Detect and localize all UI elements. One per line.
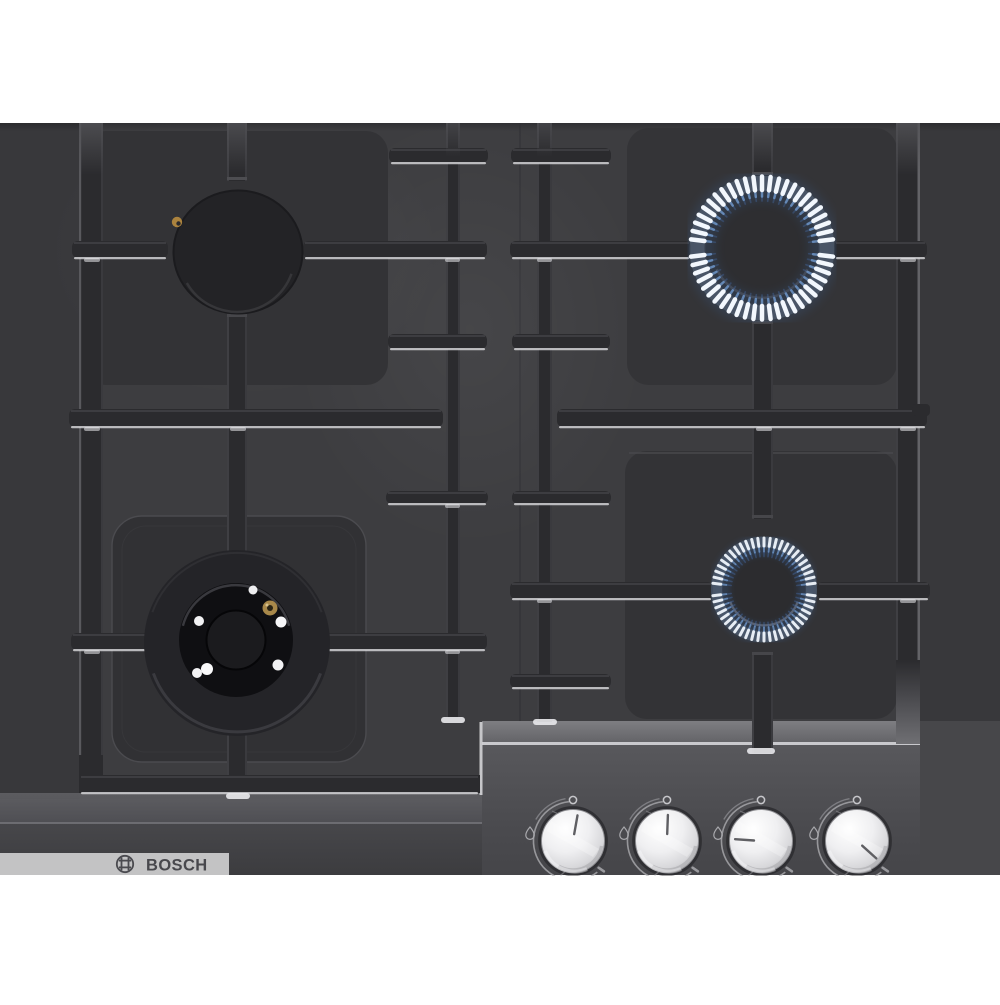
svg-text:BOSCH: BOSCH: [146, 857, 208, 875]
